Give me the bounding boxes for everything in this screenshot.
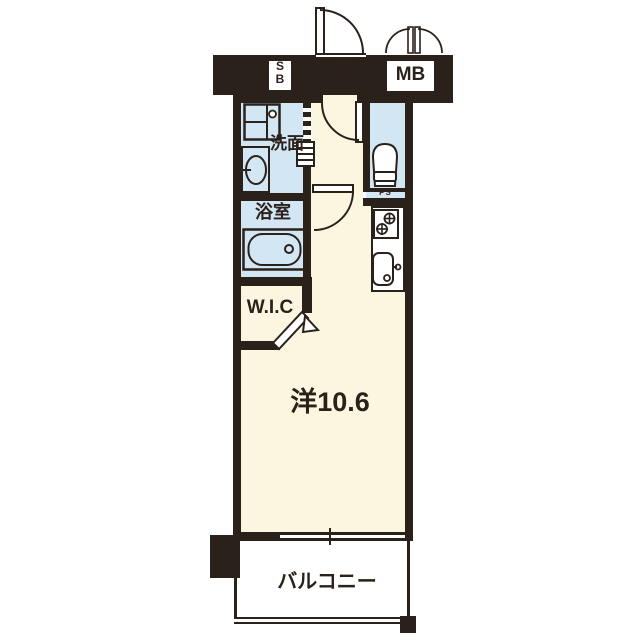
main-room-label: 洋10.6 <box>260 388 400 416</box>
pipe-space-label: PS <box>366 189 405 197</box>
bathtub-icon <box>242 228 308 272</box>
wic-label: W.I.C <box>238 298 302 318</box>
wall-top-right <box>363 95 453 103</box>
pillar-bottom-left <box>210 535 240 578</box>
wall-bathroom-wic <box>233 277 312 286</box>
meter-box-label: MB <box>383 65 438 85</box>
shoe-box-label: S B <box>266 60 294 85</box>
wall-right <box>405 102 413 540</box>
entrance-door-arc <box>314 5 370 58</box>
balcony-window <box>280 533 405 540</box>
balcony-rail-right <box>407 541 410 620</box>
floorplan-canvas: 玄関 S B MB 洗面 浴室 PS W.I.C 洋10.6 バルコニー <box>0 0 640 640</box>
balcony-window-tick <box>329 528 331 545</box>
toilet-icon <box>368 141 402 189</box>
balcony-rail-bottom <box>234 617 415 624</box>
balcony-label: バルコニー <box>262 572 392 593</box>
balcony-corner-post <box>400 616 416 633</box>
bathroom-label: 浴室 <box>244 203 302 222</box>
washbasin-icon <box>241 146 271 194</box>
wall-washroom-bathroom <box>233 193 311 201</box>
meter-box-doors <box>385 25 443 55</box>
entrance-label: 玄関 <box>294 64 378 86</box>
stove-icon <box>373 209 400 240</box>
washroom-label: 洗面 <box>262 135 312 153</box>
kitchen-sink-icon <box>371 251 401 287</box>
corridor-door-arc <box>318 98 368 148</box>
wall-pipe-space-bottom <box>363 198 405 206</box>
room-door-arc <box>310 183 360 235</box>
